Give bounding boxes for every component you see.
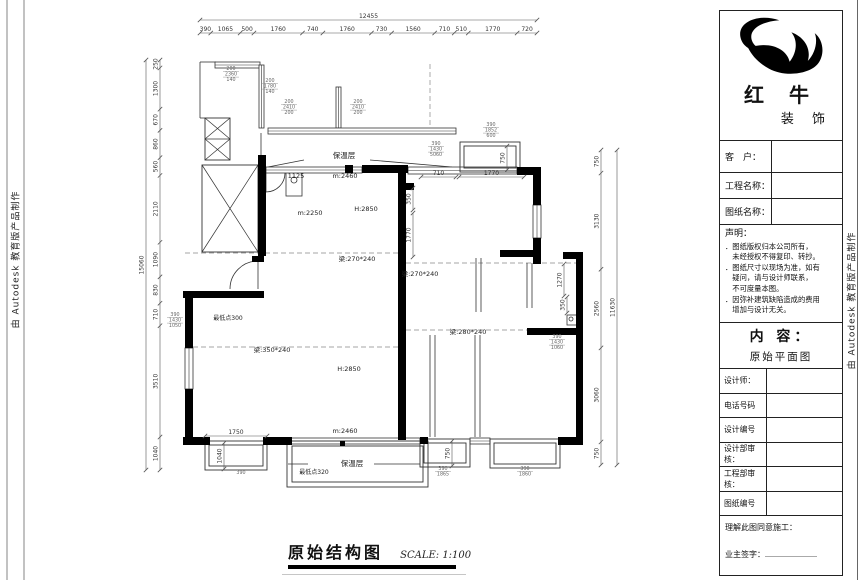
svg-text:1750: 1750 bbox=[228, 429, 243, 436]
design-no-label: 设计编号 bbox=[720, 418, 767, 442]
svg-text:1430: 1430 bbox=[169, 318, 181, 324]
svg-text:m:2250: m:2250 bbox=[297, 209, 322, 217]
svg-text:11630: 11630 bbox=[610, 298, 617, 317]
svg-text:1780: 1780 bbox=[264, 84, 276, 90]
svg-text:2110: 2110 bbox=[153, 201, 160, 216]
svg-text:390: 390 bbox=[486, 122, 495, 128]
brand-suffix: 装 饰 bbox=[720, 108, 842, 127]
svg-text:1770: 1770 bbox=[484, 170, 499, 177]
svg-text:350: 350 bbox=[406, 193, 413, 205]
svg-text:350: 350 bbox=[560, 299, 567, 311]
svg-text:750: 750 bbox=[594, 156, 601, 168]
svg-text:2360: 2360 bbox=[225, 72, 237, 78]
svg-text:1860: 1860 bbox=[519, 472, 531, 478]
statement-line: 不可度量本图。 bbox=[725, 284, 839, 295]
shaft-hatches bbox=[202, 118, 258, 252]
svg-text:1560: 1560 bbox=[405, 26, 420, 33]
svg-text:保温层: 保温层 bbox=[341, 459, 364, 468]
drawing-name-row: 图纸名称： bbox=[720, 199, 842, 225]
svg-text:5060: 5060 bbox=[430, 152, 442, 158]
svg-text:梁:270*240: 梁:270*240 bbox=[402, 269, 439, 278]
svg-text:710: 710 bbox=[439, 26, 451, 33]
svg-text:1760: 1760 bbox=[340, 26, 355, 33]
agreement-text: 理解此图同意施工： bbox=[725, 522, 838, 533]
project-name-label: 工程名称： bbox=[720, 173, 772, 198]
svg-text:830: 830 bbox=[153, 284, 160, 296]
eng-dept-label: 工程部审核： bbox=[720, 467, 767, 491]
svg-text:1040: 1040 bbox=[153, 446, 160, 461]
svg-text:200: 200 bbox=[265, 78, 274, 84]
svg-text:860: 860 bbox=[153, 138, 160, 150]
project-name-row: 工程名称： bbox=[720, 173, 842, 199]
signature-line bbox=[765, 549, 817, 557]
svg-text:1760: 1760 bbox=[271, 26, 286, 33]
svg-text:1060: 1060 bbox=[551, 345, 563, 351]
brand-name: 红 牛 bbox=[720, 79, 842, 108]
svg-text:15060: 15060 bbox=[139, 255, 146, 274]
svg-text:3060: 3060 bbox=[594, 387, 601, 402]
design-dept-row: 设计部审核： bbox=[720, 443, 842, 468]
svg-text:250: 250 bbox=[153, 58, 160, 70]
drawing-title-text: 原始结构图 bbox=[288, 543, 383, 562]
statement-heading: 声明： bbox=[725, 229, 839, 240]
content-heading: 内 容： bbox=[720, 326, 842, 346]
autodesk-watermark-left: 由 Autodesk 教育版产品制作 bbox=[9, 150, 22, 370]
svg-text:390: 390 bbox=[236, 470, 245, 476]
logo-box: 红 牛 装 饰 bbox=[720, 11, 842, 141]
svg-text:1430: 1430 bbox=[551, 340, 563, 346]
svg-text:200: 200 bbox=[284, 99, 293, 105]
design-no-row: 设计编号 bbox=[720, 418, 842, 443]
svg-text:200: 200 bbox=[284, 110, 293, 116]
svg-text:510: 510 bbox=[456, 26, 468, 33]
drawing-scale: SCALE: 1:100 bbox=[400, 550, 471, 561]
svg-text:1065: 1065 bbox=[218, 26, 233, 33]
svg-text:1090: 1090 bbox=[153, 252, 160, 267]
svg-text:最低点300: 最低点300 bbox=[213, 314, 243, 322]
content-value: 原始平面图 bbox=[720, 349, 842, 364]
statement-box: 声明： ．图纸版权归本公司所有， 未经授权不得复印、转抄。 ．图纸尺寸以现场为准… bbox=[720, 225, 842, 323]
customer-value bbox=[772, 141, 842, 172]
svg-text:1125: 1125 bbox=[288, 172, 305, 180]
svg-text:2410: 2410 bbox=[283, 105, 295, 111]
svg-text:12455: 12455 bbox=[359, 13, 378, 20]
title-underline-bar bbox=[288, 565, 456, 569]
eng-dept-row: 工程部审核： bbox=[720, 467, 842, 492]
svg-text:1300: 1300 bbox=[153, 81, 160, 96]
designer-row: 设计师： bbox=[720, 369, 842, 394]
statement-line: ．图纸尺寸以现场为准，如有 bbox=[725, 263, 839, 274]
svg-text:720: 720 bbox=[521, 26, 533, 33]
svg-text:140: 140 bbox=[226, 77, 235, 83]
svg-text:200: 200 bbox=[226, 66, 235, 72]
svg-text:200: 200 bbox=[353, 99, 362, 105]
svg-text:梁:350*240: 梁:350*240 bbox=[254, 345, 291, 354]
plan-labels: 梁:270*240梁:270*240梁:280*240梁:350*240m:22… bbox=[213, 151, 486, 476]
signature-box: 理解此图同意施工： 业主签字： bbox=[720, 516, 842, 575]
svg-text:1040: 1040 bbox=[217, 448, 224, 463]
svg-text:600: 600 bbox=[486, 133, 495, 139]
svg-text:m:2460: m:2460 bbox=[332, 427, 357, 435]
drawing-no-row: 图纸编号 bbox=[720, 492, 842, 517]
svg-text:1865: 1865 bbox=[437, 472, 449, 478]
customer-row: 客 户： bbox=[720, 141, 842, 173]
drawing-no-label: 图纸编号 bbox=[720, 492, 767, 516]
svg-text:1852: 1852 bbox=[485, 128, 497, 134]
svg-text:保温层: 保温层 bbox=[333, 151, 356, 160]
svg-text:H:2850: H:2850 bbox=[337, 365, 361, 373]
drawing-sheet: 1245539010655001760740176073015607105101… bbox=[0, 0, 860, 580]
svg-text:1770: 1770 bbox=[485, 26, 500, 33]
autodesk-watermark-right: 由 Autodesk 教育版产品制作 bbox=[845, 191, 858, 411]
svg-text:1050: 1050 bbox=[169, 323, 181, 329]
statement-line: 未经授权不得复印、转抄。 bbox=[725, 252, 839, 263]
content-box: 内 容： 原始平面图 bbox=[720, 323, 842, 369]
svg-text:390: 390 bbox=[438, 466, 447, 472]
svg-text:最低点320: 最低点320 bbox=[299, 468, 329, 476]
drawing-title: 原始结构图 SCALE: 1:100 bbox=[288, 539, 498, 575]
svg-text:390: 390 bbox=[552, 334, 561, 340]
svg-text:梁:270*240: 梁:270*240 bbox=[339, 254, 376, 263]
customer-label: 客 户： bbox=[720, 141, 772, 172]
svg-text:390: 390 bbox=[431, 141, 440, 147]
statement-line: ．图纸版权归本公司所有， bbox=[725, 242, 839, 253]
svg-text:390: 390 bbox=[520, 466, 529, 472]
floor-plan: 1245539010655001760740176073015607105101… bbox=[0, 0, 718, 580]
structural-walls bbox=[183, 155, 583, 446]
svg-text:710: 710 bbox=[153, 309, 160, 321]
svg-text:3510: 3510 bbox=[153, 374, 160, 389]
project-name-value bbox=[772, 173, 842, 198]
svg-text:670: 670 bbox=[153, 114, 160, 126]
svg-text:2410: 2410 bbox=[352, 105, 364, 111]
svg-text:390: 390 bbox=[170, 312, 179, 318]
title-underline-thin bbox=[282, 574, 466, 575]
bull-logo bbox=[729, 15, 833, 79]
title-block: 红 牛 装 饰 客 户： 工程名称： 图纸名称： 声明： ．图纸版权归本公司所有… bbox=[719, 10, 843, 576]
info-fields: 设计师： 电话号码 设计编号 设计部审核： 工程部审核： 图纸编号 bbox=[720, 369, 842, 516]
svg-text:750: 750 bbox=[594, 448, 601, 460]
statement-line: ．因弥补建筑缺陷造成的费用 bbox=[725, 295, 839, 306]
svg-text:140: 140 bbox=[265, 89, 274, 95]
svg-text:500: 500 bbox=[241, 26, 253, 33]
svg-text:200: 200 bbox=[353, 110, 362, 116]
svg-text:710: 710 bbox=[433, 170, 445, 177]
dimension-chains: 1245539010655001760740176073015607105101… bbox=[139, 13, 620, 472]
svg-text:H:2850: H:2850 bbox=[354, 205, 378, 213]
svg-text:740: 740 bbox=[307, 26, 319, 33]
statement-line: 疑问，请与设计师联系， bbox=[725, 273, 839, 284]
svg-text:1770: 1770 bbox=[406, 227, 413, 242]
phone-row: 电话号码 bbox=[720, 394, 842, 419]
svg-text:3130: 3130 bbox=[594, 213, 601, 228]
design-dept-label: 设计部审核： bbox=[720, 443, 767, 467]
svg-text:560: 560 bbox=[153, 161, 160, 173]
svg-text:750: 750 bbox=[500, 152, 507, 164]
sheet-border-right bbox=[857, 0, 858, 580]
svg-text:1430: 1430 bbox=[430, 147, 442, 153]
svg-text:梁:280*240: 梁:280*240 bbox=[450, 327, 487, 336]
statement-line: 增加与设计无关。 bbox=[725, 305, 839, 316]
drawing-name-value bbox=[772, 199, 842, 224]
svg-text:m:2460: m:2460 bbox=[332, 172, 357, 180]
phone-label: 电话号码 bbox=[720, 394, 767, 418]
svg-text:390: 390 bbox=[200, 26, 212, 33]
designer-label: 设计师： bbox=[720, 369, 767, 393]
svg-text:750: 750 bbox=[445, 448, 452, 460]
owner-signature-label: 业主签字： bbox=[725, 550, 765, 559]
beam-dashed-lines bbox=[185, 64, 576, 347]
svg-text:1270: 1270 bbox=[557, 272, 564, 287]
svg-text:2560: 2560 bbox=[594, 301, 601, 316]
svg-text:730: 730 bbox=[376, 26, 388, 33]
drawing-name-label: 图纸名称： bbox=[720, 199, 772, 224]
